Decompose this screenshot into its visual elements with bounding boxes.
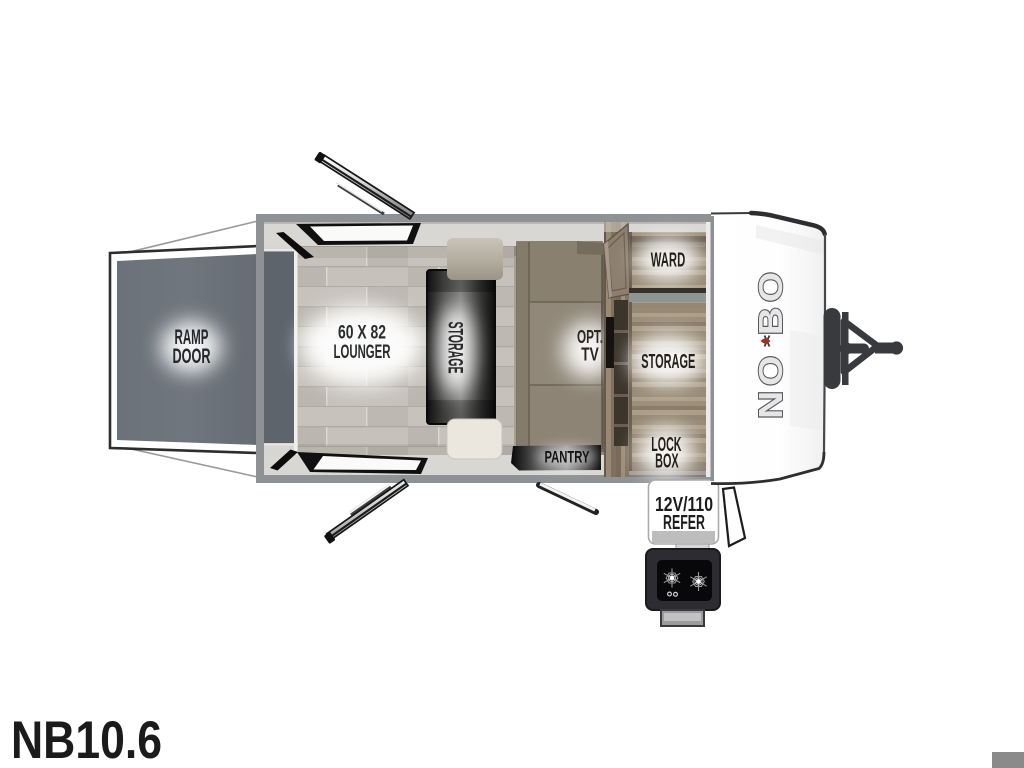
svg-text:TV: TV — [581, 344, 599, 365]
svg-text:NB10.6: NB10.6 — [11, 711, 162, 768]
svg-text:STORAGE: STORAGE — [641, 350, 695, 373]
svg-text:NO BO: NO BO — [752, 267, 789, 419]
svg-text:PANTRY: PANTRY — [545, 449, 590, 467]
svg-text:REFER: REFER — [663, 512, 705, 534]
svg-text:BOX: BOX — [655, 450, 679, 473]
svg-text:WARD: WARD — [651, 249, 686, 272]
svg-text:LOUNGER: LOUNGER — [334, 341, 391, 363]
svg-text:STORAGE: STORAGE — [444, 322, 467, 374]
svg-text:DOOR: DOOR — [173, 345, 211, 368]
